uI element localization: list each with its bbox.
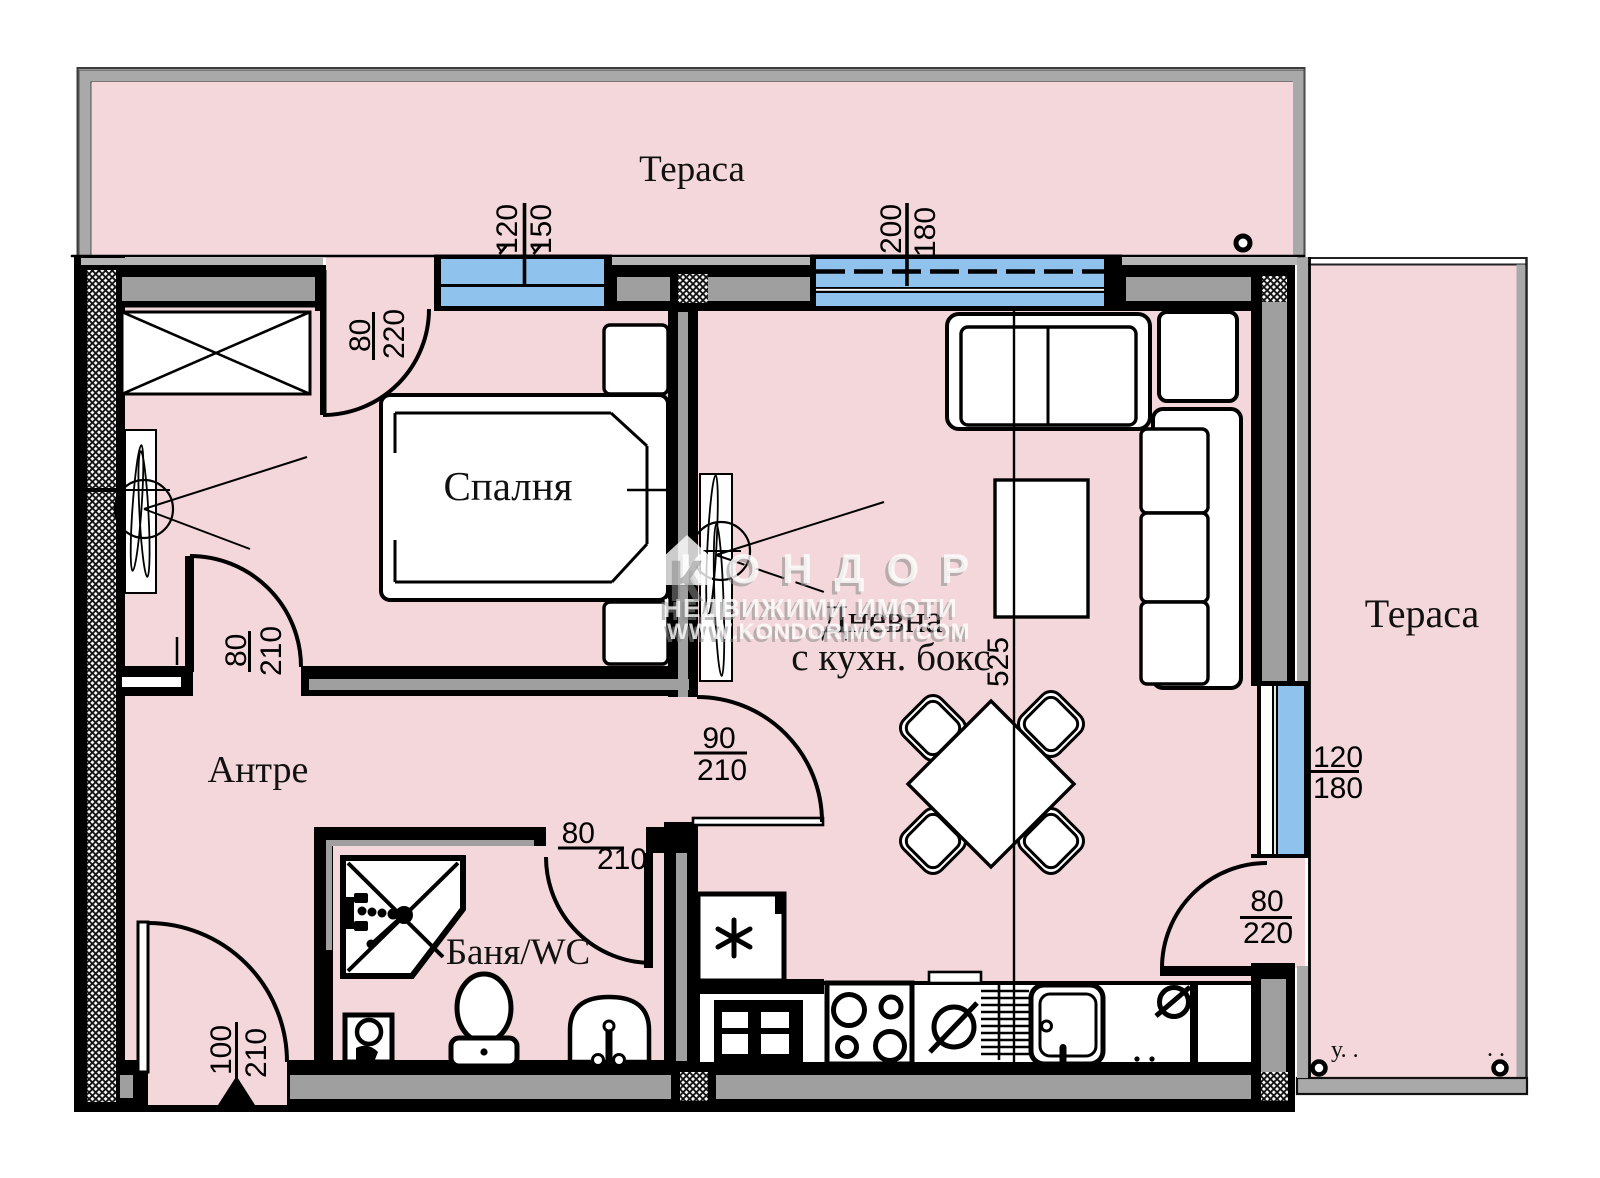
svg-text:210: 210: [255, 626, 288, 676]
svg-text:180: 180: [1313, 772, 1363, 805]
svg-text:210: 210: [240, 1028, 273, 1078]
svg-text:80: 80: [562, 817, 595, 850]
svg-text:180: 180: [909, 207, 942, 257]
svg-text:90: 90: [702, 722, 735, 755]
svg-text:80: 80: [344, 319, 377, 352]
svg-text:. .: . .: [1487, 1036, 1505, 1062]
svg-text:100: 100: [205, 1025, 238, 1075]
svg-text:120: 120: [1313, 741, 1363, 774]
svg-text:Тераса: Тераса: [639, 149, 745, 190]
svg-text:К: К: [668, 549, 704, 614]
svg-text:WWW.KONDORIMOTI.COM: WWW.KONDORIMOTI.COM: [667, 619, 970, 644]
svg-text:80: 80: [1250, 885, 1283, 918]
svg-text:Спалня: Спалня: [443, 463, 572, 509]
svg-text:80: 80: [220, 634, 253, 667]
svg-text:у. .: у. .: [1331, 1037, 1359, 1063]
svg-text:120: 120: [491, 204, 524, 254]
svg-text:Баня/WC: Баня/WC: [446, 932, 590, 973]
svg-text:150: 150: [525, 204, 558, 254]
svg-text:КОНДОР: КОНДОР: [680, 545, 991, 592]
svg-text:200: 200: [875, 204, 908, 254]
svg-text:Антре: Антре: [208, 749, 309, 791]
svg-text:220: 220: [378, 309, 411, 359]
svg-text:Тераса: Тераса: [1365, 591, 1480, 636]
svg-text:220: 220: [1243, 917, 1293, 950]
svg-text:210: 210: [697, 754, 747, 787]
svg-text:210: 210: [597, 843, 647, 876]
